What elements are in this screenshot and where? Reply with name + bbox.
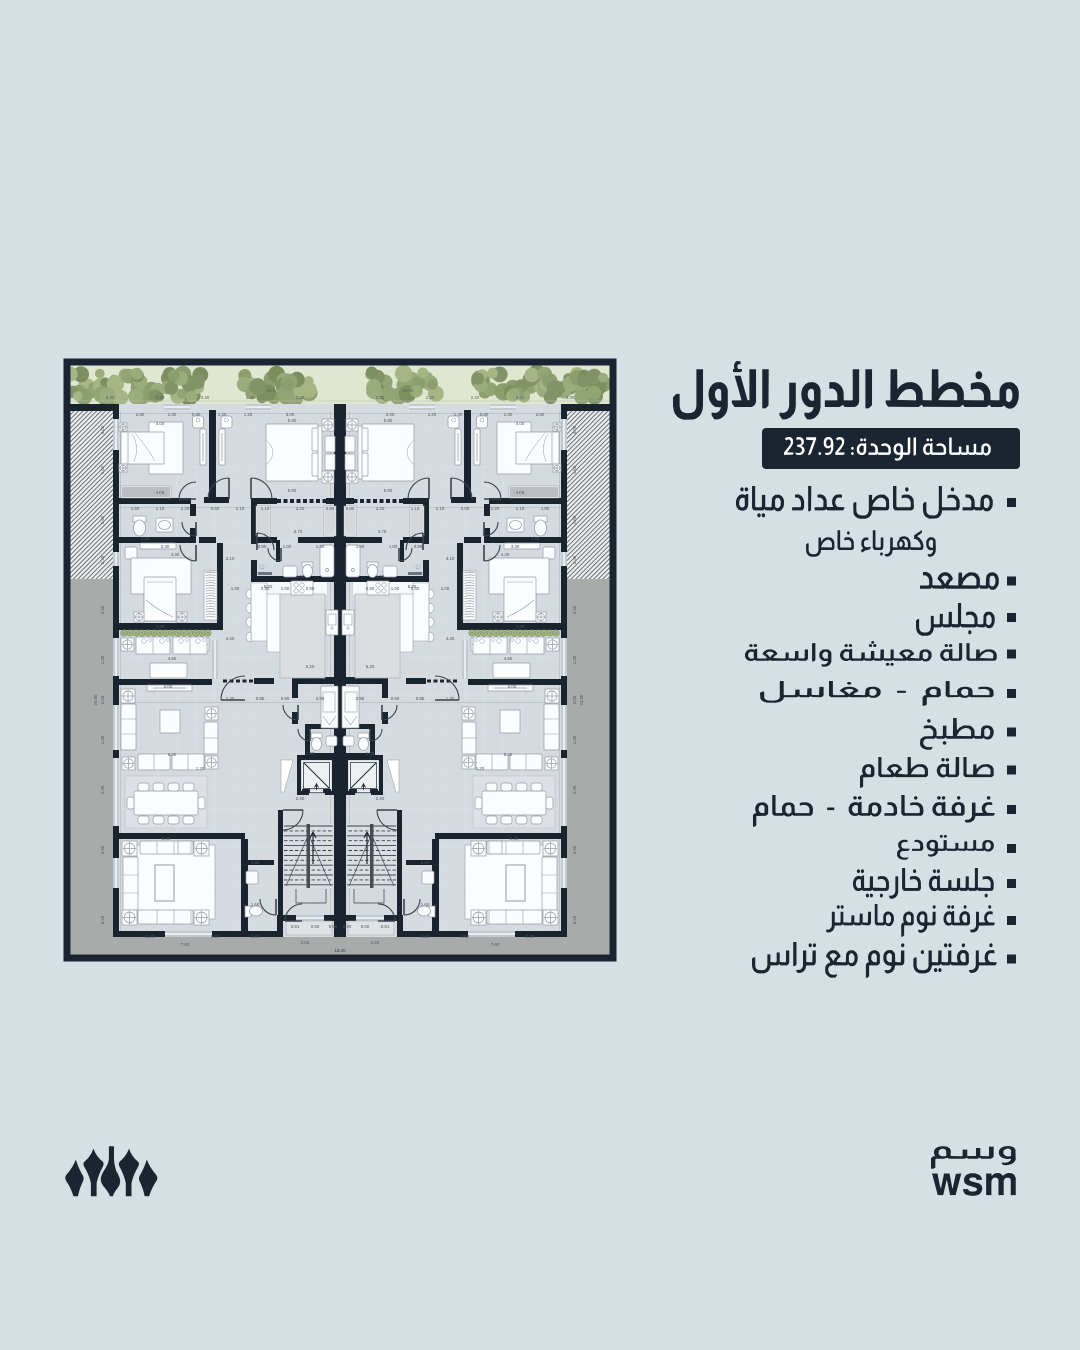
svg-text:1.60: 1.60 [100, 465, 105, 474]
svg-text:0.90: 0.90 [329, 924, 338, 929]
svg-text:2.20: 2.20 [526, 934, 535, 939]
svg-text:1.80: 1.80 [316, 544, 325, 549]
svg-text:4.40: 4.40 [171, 552, 180, 557]
svg-text:2.20: 2.20 [181, 506, 190, 511]
svg-text:0.90: 0.90 [306, 586, 315, 591]
svg-text:4.40: 4.40 [446, 636, 455, 641]
svg-text:10.20: 10.20 [403, 388, 415, 393]
svg-text:5.40: 5.40 [162, 836, 171, 841]
svg-text:0.90: 0.90 [258, 544, 267, 549]
svg-text:4.60: 4.60 [168, 656, 177, 661]
svg-text:2.20: 2.20 [376, 506, 385, 511]
svg-text:0.60: 0.60 [361, 924, 370, 929]
svg-text:5.20: 5.20 [264, 584, 273, 589]
svg-text:1.30: 1.30 [504, 412, 513, 417]
svg-text:2.00: 2.00 [461, 934, 470, 939]
svg-text:2.20: 2.20 [376, 395, 385, 400]
svg-text:0.60: 0.60 [311, 924, 320, 929]
svg-text:4.40: 4.40 [156, 624, 165, 629]
svg-text:3.30: 3.30 [161, 544, 170, 549]
svg-text:4.00: 4.00 [572, 425, 577, 434]
svg-text:2.60: 2.60 [531, 536, 540, 541]
svg-text:0.90: 0.90 [366, 586, 375, 591]
svg-text:2.60: 2.60 [100, 515, 105, 524]
svg-text:5.20: 5.20 [408, 584, 417, 589]
svg-text:0.60: 0.60 [211, 506, 220, 511]
svg-text:1.00: 1.00 [283, 544, 292, 549]
svg-text:4.40: 4.40 [501, 552, 510, 557]
svg-text:2.40: 2.40 [471, 395, 480, 400]
svg-text:0.90: 0.90 [391, 696, 400, 701]
svg-text:1.00: 1.00 [231, 586, 240, 591]
svg-text:3.70: 3.70 [294, 529, 303, 534]
svg-text:1.00: 1.00 [441, 586, 450, 591]
svg-text:3.70: 3.70 [378, 529, 387, 534]
svg-text:0.20: 0.20 [100, 915, 105, 924]
svg-text:1.60: 1.60 [421, 860, 430, 865]
svg-text:5.80: 5.80 [288, 418, 297, 423]
svg-text:4.00: 4.00 [516, 421, 525, 426]
svg-text:5.80: 5.80 [288, 488, 297, 493]
svg-text:1.20: 1.20 [428, 412, 437, 417]
svg-text:1.10: 1.10 [516, 506, 525, 511]
svg-text:3.30: 3.30 [566, 395, 575, 400]
svg-text:4.60: 4.60 [504, 656, 513, 661]
svg-text:1.20: 1.20 [476, 766, 485, 771]
svg-text:4.00: 4.00 [156, 490, 165, 495]
svg-text:2.35: 2.35 [100, 785, 105, 794]
svg-text:0.80: 0.80 [326, 506, 335, 511]
svg-text:2.35: 2.35 [572, 555, 577, 564]
svg-text:3.20: 3.20 [516, 395, 525, 400]
svg-text:8.00: 8.00 [504, 752, 513, 757]
svg-text:2.35: 2.35 [572, 785, 577, 794]
svg-text:1.40: 1.40 [226, 696, 235, 701]
svg-text:0.85: 0.85 [256, 696, 265, 701]
svg-text:0.90: 0.90 [343, 924, 352, 929]
svg-text:2.60: 2.60 [301, 940, 310, 945]
svg-text:5.20: 5.20 [366, 664, 375, 669]
svg-text:2.20: 2.20 [296, 506, 305, 511]
svg-text:2.40: 2.40 [376, 796, 385, 801]
svg-text:1.40: 1.40 [446, 696, 455, 701]
svg-text:4.90: 4.90 [100, 845, 105, 854]
svg-text:1.20: 1.20 [244, 412, 253, 417]
svg-text:4.90: 4.90 [572, 845, 577, 854]
svg-text:0.90: 0.90 [414, 544, 423, 549]
svg-text:4.00: 4.00 [376, 574, 385, 579]
svg-text:1.10: 1.10 [436, 506, 445, 511]
svg-text:2.20: 2.20 [146, 934, 155, 939]
svg-text:1.40: 1.40 [218, 412, 227, 417]
svg-text:1.80: 1.80 [131, 506, 140, 511]
svg-text:2.85: 2.85 [316, 696, 325, 701]
svg-text:1.60: 1.60 [421, 902, 430, 907]
svg-text:2.20: 2.20 [491, 506, 500, 511]
svg-text:0.91: 0.91 [291, 924, 300, 929]
svg-text:2.05: 2.05 [100, 695, 105, 704]
svg-text:2.60: 2.60 [572, 515, 577, 524]
svg-text:1.80: 1.80 [356, 544, 365, 549]
svg-text:5.80: 5.80 [384, 418, 393, 423]
svg-text:2.05: 2.05 [572, 695, 577, 704]
svg-text:6.00: 6.00 [508, 684, 517, 689]
svg-text:4.00: 4.00 [516, 490, 525, 495]
svg-text:2.20: 2.20 [296, 395, 305, 400]
svg-text:3.00: 3.00 [386, 412, 395, 417]
svg-text:4.40: 4.40 [516, 624, 525, 629]
svg-text:1.00: 1.00 [306, 751, 315, 756]
svg-text:8.00: 8.00 [168, 752, 177, 757]
svg-text:0.90: 0.90 [281, 696, 290, 701]
svg-text:2.60: 2.60 [141, 536, 150, 541]
svg-text:2.40: 2.40 [572, 605, 577, 614]
svg-text:1.00: 1.00 [281, 586, 290, 591]
svg-text:2.40: 2.40 [201, 395, 210, 400]
svg-text:5.40: 5.40 [510, 836, 519, 841]
svg-text:1.10: 1.10 [236, 506, 245, 511]
svg-text:3.30: 3.30 [106, 395, 115, 400]
svg-text:3.20: 3.20 [156, 395, 165, 400]
svg-text:18.20: 18.20 [335, 948, 347, 953]
svg-text:1.80: 1.80 [541, 506, 550, 511]
svg-text:1.40: 1.40 [100, 735, 105, 744]
svg-text:1.10: 1.10 [411, 506, 420, 511]
svg-text:3.10: 3.10 [446, 556, 455, 561]
svg-text:10.20: 10.20 [267, 388, 279, 393]
svg-text:1.00: 1.00 [389, 544, 398, 549]
svg-text:2.40: 2.40 [296, 796, 305, 801]
svg-text:1.20: 1.20 [100, 655, 105, 664]
svg-text:1.20: 1.20 [426, 395, 435, 400]
svg-text:0.80: 0.80 [480, 412, 489, 417]
svg-text:1.20: 1.20 [196, 766, 205, 771]
svg-text:2.80: 2.80 [136, 412, 145, 417]
svg-text:1.00: 1.00 [366, 751, 375, 756]
svg-text:2.60: 2.60 [371, 940, 380, 945]
svg-text:4.00: 4.00 [296, 574, 305, 579]
svg-text:1.40: 1.40 [454, 412, 463, 417]
svg-text:0.60: 0.60 [461, 506, 470, 511]
svg-text:2.85: 2.85 [356, 696, 365, 701]
svg-text:2.40: 2.40 [100, 605, 105, 614]
svg-text:1.40: 1.40 [572, 735, 577, 744]
svg-text:0.85: 0.85 [416, 696, 425, 701]
svg-text:1.60: 1.60 [251, 860, 260, 865]
svg-text:3.40: 3.40 [251, 934, 260, 939]
svg-text:0.20: 0.20 [572, 915, 577, 924]
svg-text:0.80: 0.80 [192, 412, 201, 417]
svg-text:0.80: 0.80 [346, 506, 355, 511]
svg-text:0.91: 0.91 [381, 924, 390, 929]
svg-text:1.10: 1.10 [261, 506, 270, 511]
svg-text:5.80: 5.80 [384, 488, 393, 493]
svg-text:3.40: 3.40 [421, 934, 430, 939]
svg-text:1.30: 1.30 [168, 412, 177, 417]
svg-text:1.60: 1.60 [572, 465, 577, 474]
svg-text:1.10: 1.10 [156, 506, 165, 511]
svg-text:4.00: 4.00 [156, 421, 165, 426]
svg-text:1.60: 1.60 [251, 902, 260, 907]
svg-text:1.00: 1.00 [391, 586, 400, 591]
svg-text:1.20: 1.20 [246, 395, 255, 400]
svg-text:2.00: 2.00 [211, 934, 220, 939]
svg-text:24.00: 24.00 [579, 694, 584, 706]
svg-text:5.20: 5.20 [306, 664, 315, 669]
svg-text:3.10: 3.10 [226, 556, 235, 561]
svg-text:2.80: 2.80 [536, 412, 545, 417]
svg-text:1.20: 1.20 [572, 655, 577, 664]
svg-text:3.00: 3.00 [286, 412, 295, 417]
svg-text:7.60: 7.60 [181, 942, 190, 947]
svg-text:6.00: 6.00 [164, 684, 173, 689]
svg-text:2.35: 2.35 [100, 555, 105, 564]
svg-text:3.30: 3.30 [511, 544, 520, 549]
svg-text:4.00: 4.00 [100, 425, 105, 434]
svg-text:4.40: 4.40 [226, 636, 235, 641]
svg-text:24.00: 24.00 [93, 694, 98, 706]
svg-text:7.60: 7.60 [491, 942, 500, 947]
